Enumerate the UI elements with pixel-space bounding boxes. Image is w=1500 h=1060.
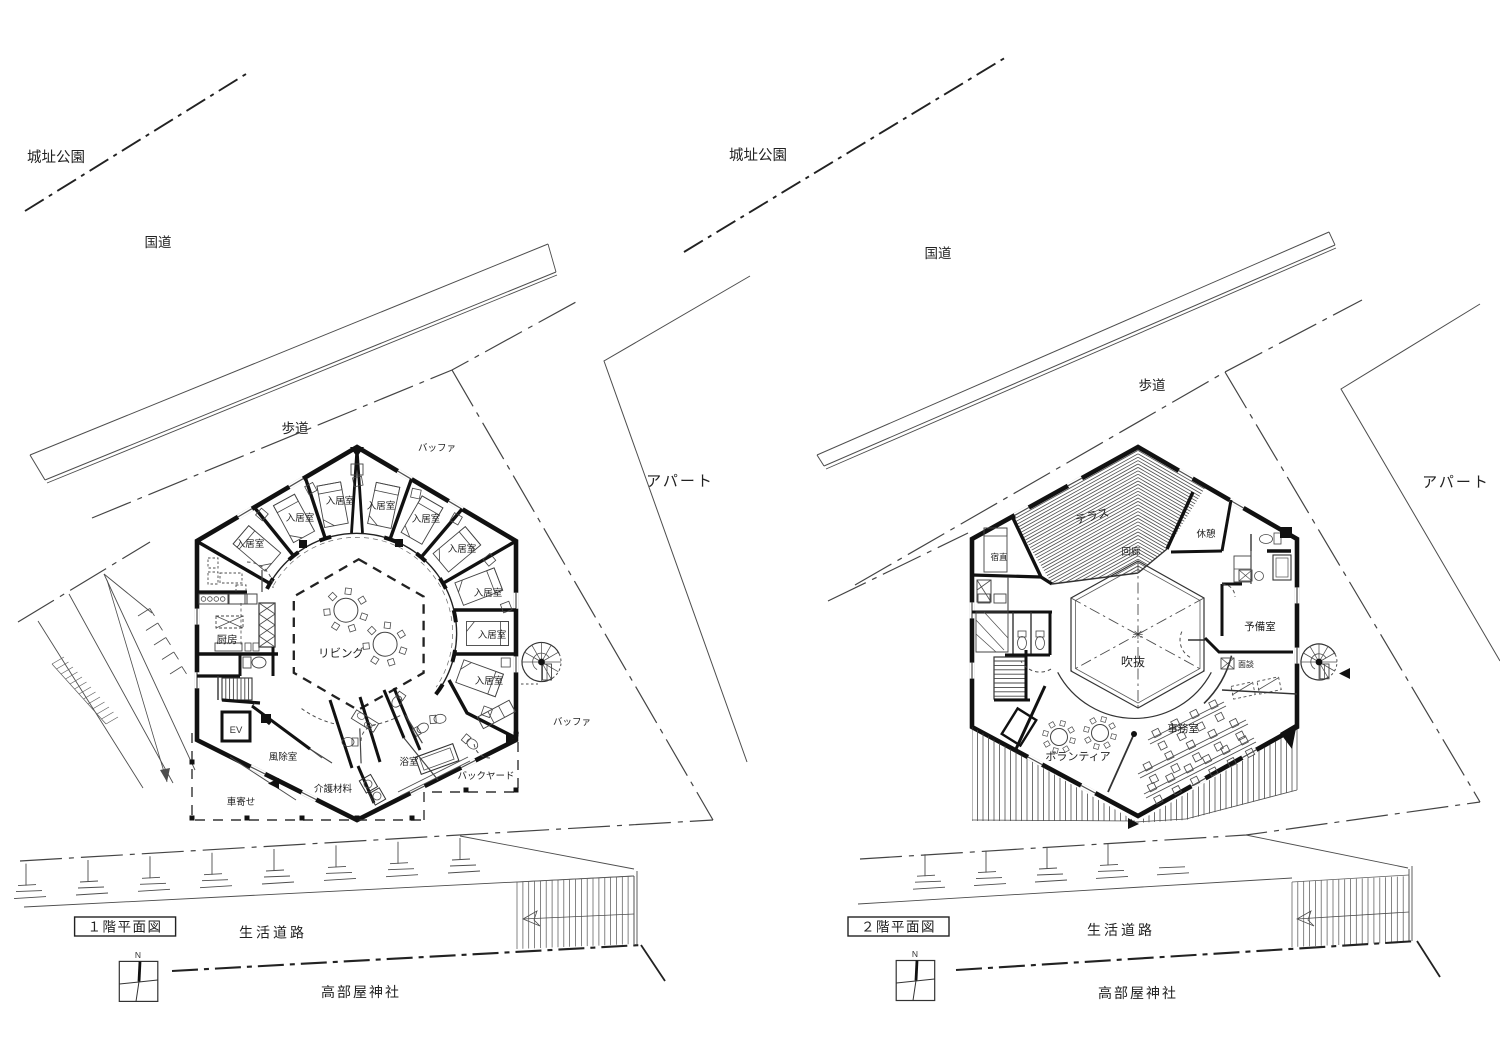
svg-text:生活道路: 生活道路	[239, 925, 307, 941]
svg-text:休憩: 休憩	[1196, 528, 1216, 540]
svg-text:入居室: 入居室	[448, 543, 477, 555]
svg-text:入居室: 入居室	[478, 629, 507, 641]
svg-text:リビング: リビング	[318, 646, 364, 660]
svg-text:入居室: 入居室	[286, 512, 315, 524]
svg-text:入居室: 入居室	[474, 587, 503, 599]
svg-text:入居室: 入居室	[412, 513, 441, 525]
svg-text:吹抜: 吹抜	[1121, 655, 1145, 669]
svg-text:EV: EV	[230, 725, 243, 736]
svg-text:✳: ✳	[1133, 627, 1144, 642]
svg-text:高部屋神社: 高部屋神社	[1098, 985, 1178, 1001]
svg-text:２階平面図: ２階平面図	[861, 920, 936, 935]
svg-text:厨房: 厨房	[217, 633, 238, 646]
svg-text:入居室: 入居室	[326, 495, 355, 507]
svg-text:生活道路: 生活道路	[1087, 922, 1155, 938]
svg-text:車寄せ: 車寄せ	[227, 796, 256, 808]
svg-text:ボランティア: ボランティア	[1045, 750, 1110, 763]
svg-text:アパート: アパート	[1422, 474, 1490, 491]
svg-text:N: N	[135, 950, 141, 960]
svg-text:入居室: 入居室	[475, 675, 504, 687]
svg-text:バックヤード: バックヤード	[457, 771, 514, 782]
svg-text:国道: 国道	[145, 235, 172, 250]
svg-text:風除室: 風除室	[269, 751, 298, 763]
svg-text:アパート: アパート	[646, 473, 714, 490]
svg-text:歩道: 歩道	[1139, 378, 1166, 393]
svg-text:介護材料: 介護材料	[314, 783, 353, 795]
svg-text:城址公園: 城址公園	[27, 149, 85, 166]
svg-text:浴室: 浴室	[399, 756, 418, 768]
svg-text:バッファ: バッファ	[553, 717, 591, 728]
svg-text:１階平面図: １階平面図	[88, 920, 163, 935]
svg-text:入居室: 入居室	[367, 500, 396, 512]
svg-text:入居室: 入居室	[236, 538, 265, 550]
svg-text:城址公園: 城址公園	[729, 147, 787, 164]
svg-text:高部屋神社: 高部屋神社	[321, 984, 401, 1000]
svg-text:国道: 国道	[925, 246, 952, 261]
svg-text:事務室: 事務室	[1167, 722, 1199, 735]
svg-text:バッファ: バッファ	[418, 443, 456, 454]
svg-text:歩道: 歩道	[282, 421, 309, 436]
svg-text:回廊: 回廊	[1121, 546, 1141, 558]
svg-text:宿直: 宿直	[990, 552, 1008, 562]
svg-text:N: N	[912, 949, 918, 959]
svg-text:予備室: 予備室	[1244, 620, 1276, 633]
svg-text:面談: 面談	[1238, 659, 1254, 669]
